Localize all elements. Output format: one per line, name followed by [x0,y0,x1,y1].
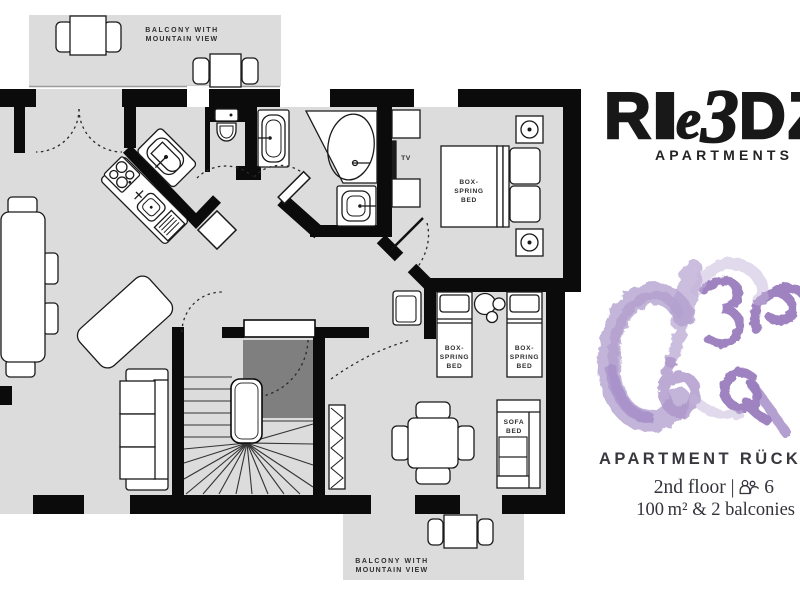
svg-text:BED: BED [461,197,477,204]
svg-text:BOX-: BOX- [445,345,464,352]
svg-text:BED: BED [516,363,532,370]
svg-text:BED: BED [446,363,462,370]
svg-text:SOFA: SOFA [504,419,525,426]
svg-text:MOUNTAIN VIEW: MOUNTAIN VIEW [146,36,219,43]
svg-text:SPRING: SPRING [510,354,539,361]
svg-text:TV: TV [401,155,411,162]
svg-text:BALCONY WITH: BALCONY WITH [145,27,219,34]
svg-text:SPRING: SPRING [454,188,483,195]
svg-text:BED: BED [506,428,522,435]
svg-text:MOUNTAIN VIEW: MOUNTAIN VIEW [356,567,429,574]
svg-text:BALCONY WITH: BALCONY WITH [355,558,429,565]
svg-text:BOX-: BOX- [459,179,478,186]
svg-text:SPRING: SPRING [440,354,469,361]
svg-text:BOX-: BOX- [515,345,534,352]
